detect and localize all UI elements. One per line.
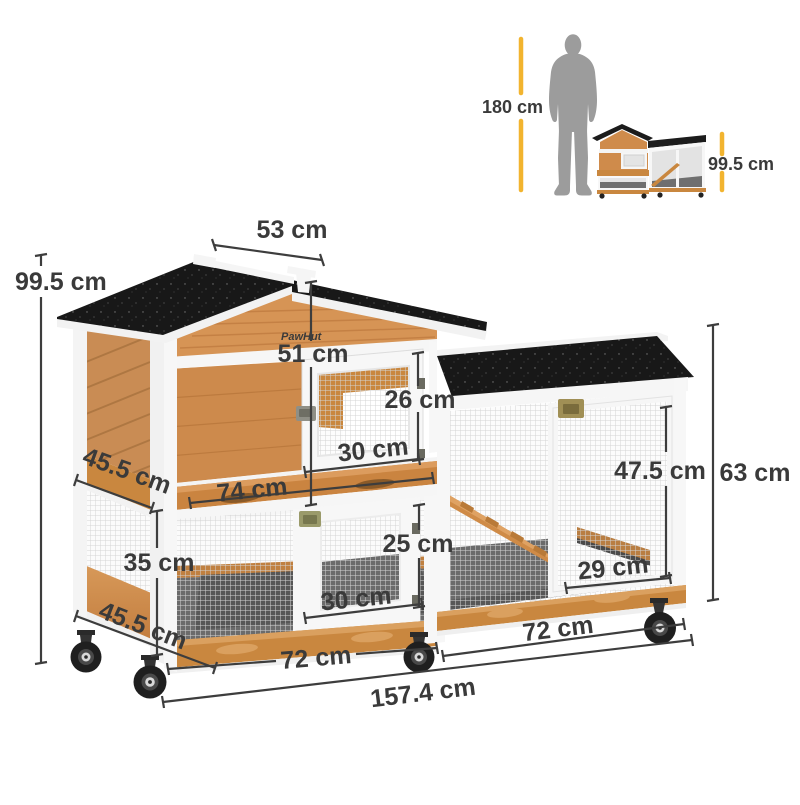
svg-text:63 cm: 63 cm bbox=[720, 459, 791, 487]
svg-text:51 cm: 51 cm bbox=[278, 340, 349, 368]
svg-text:53 cm: 53 cm bbox=[257, 216, 328, 244]
svg-text:35 cm: 35 cm bbox=[124, 549, 195, 577]
svg-text:180 cm: 180 cm bbox=[482, 97, 543, 117]
svg-text:26 cm: 26 cm bbox=[385, 386, 456, 414]
svg-text:99.5 cm: 99.5 cm bbox=[15, 268, 107, 296]
svg-text:25 cm: 25 cm bbox=[383, 530, 454, 558]
svg-text:47.5 cm: 47.5 cm bbox=[614, 457, 706, 485]
svg-text:99.5 cm: 99.5 cm bbox=[708, 154, 774, 174]
